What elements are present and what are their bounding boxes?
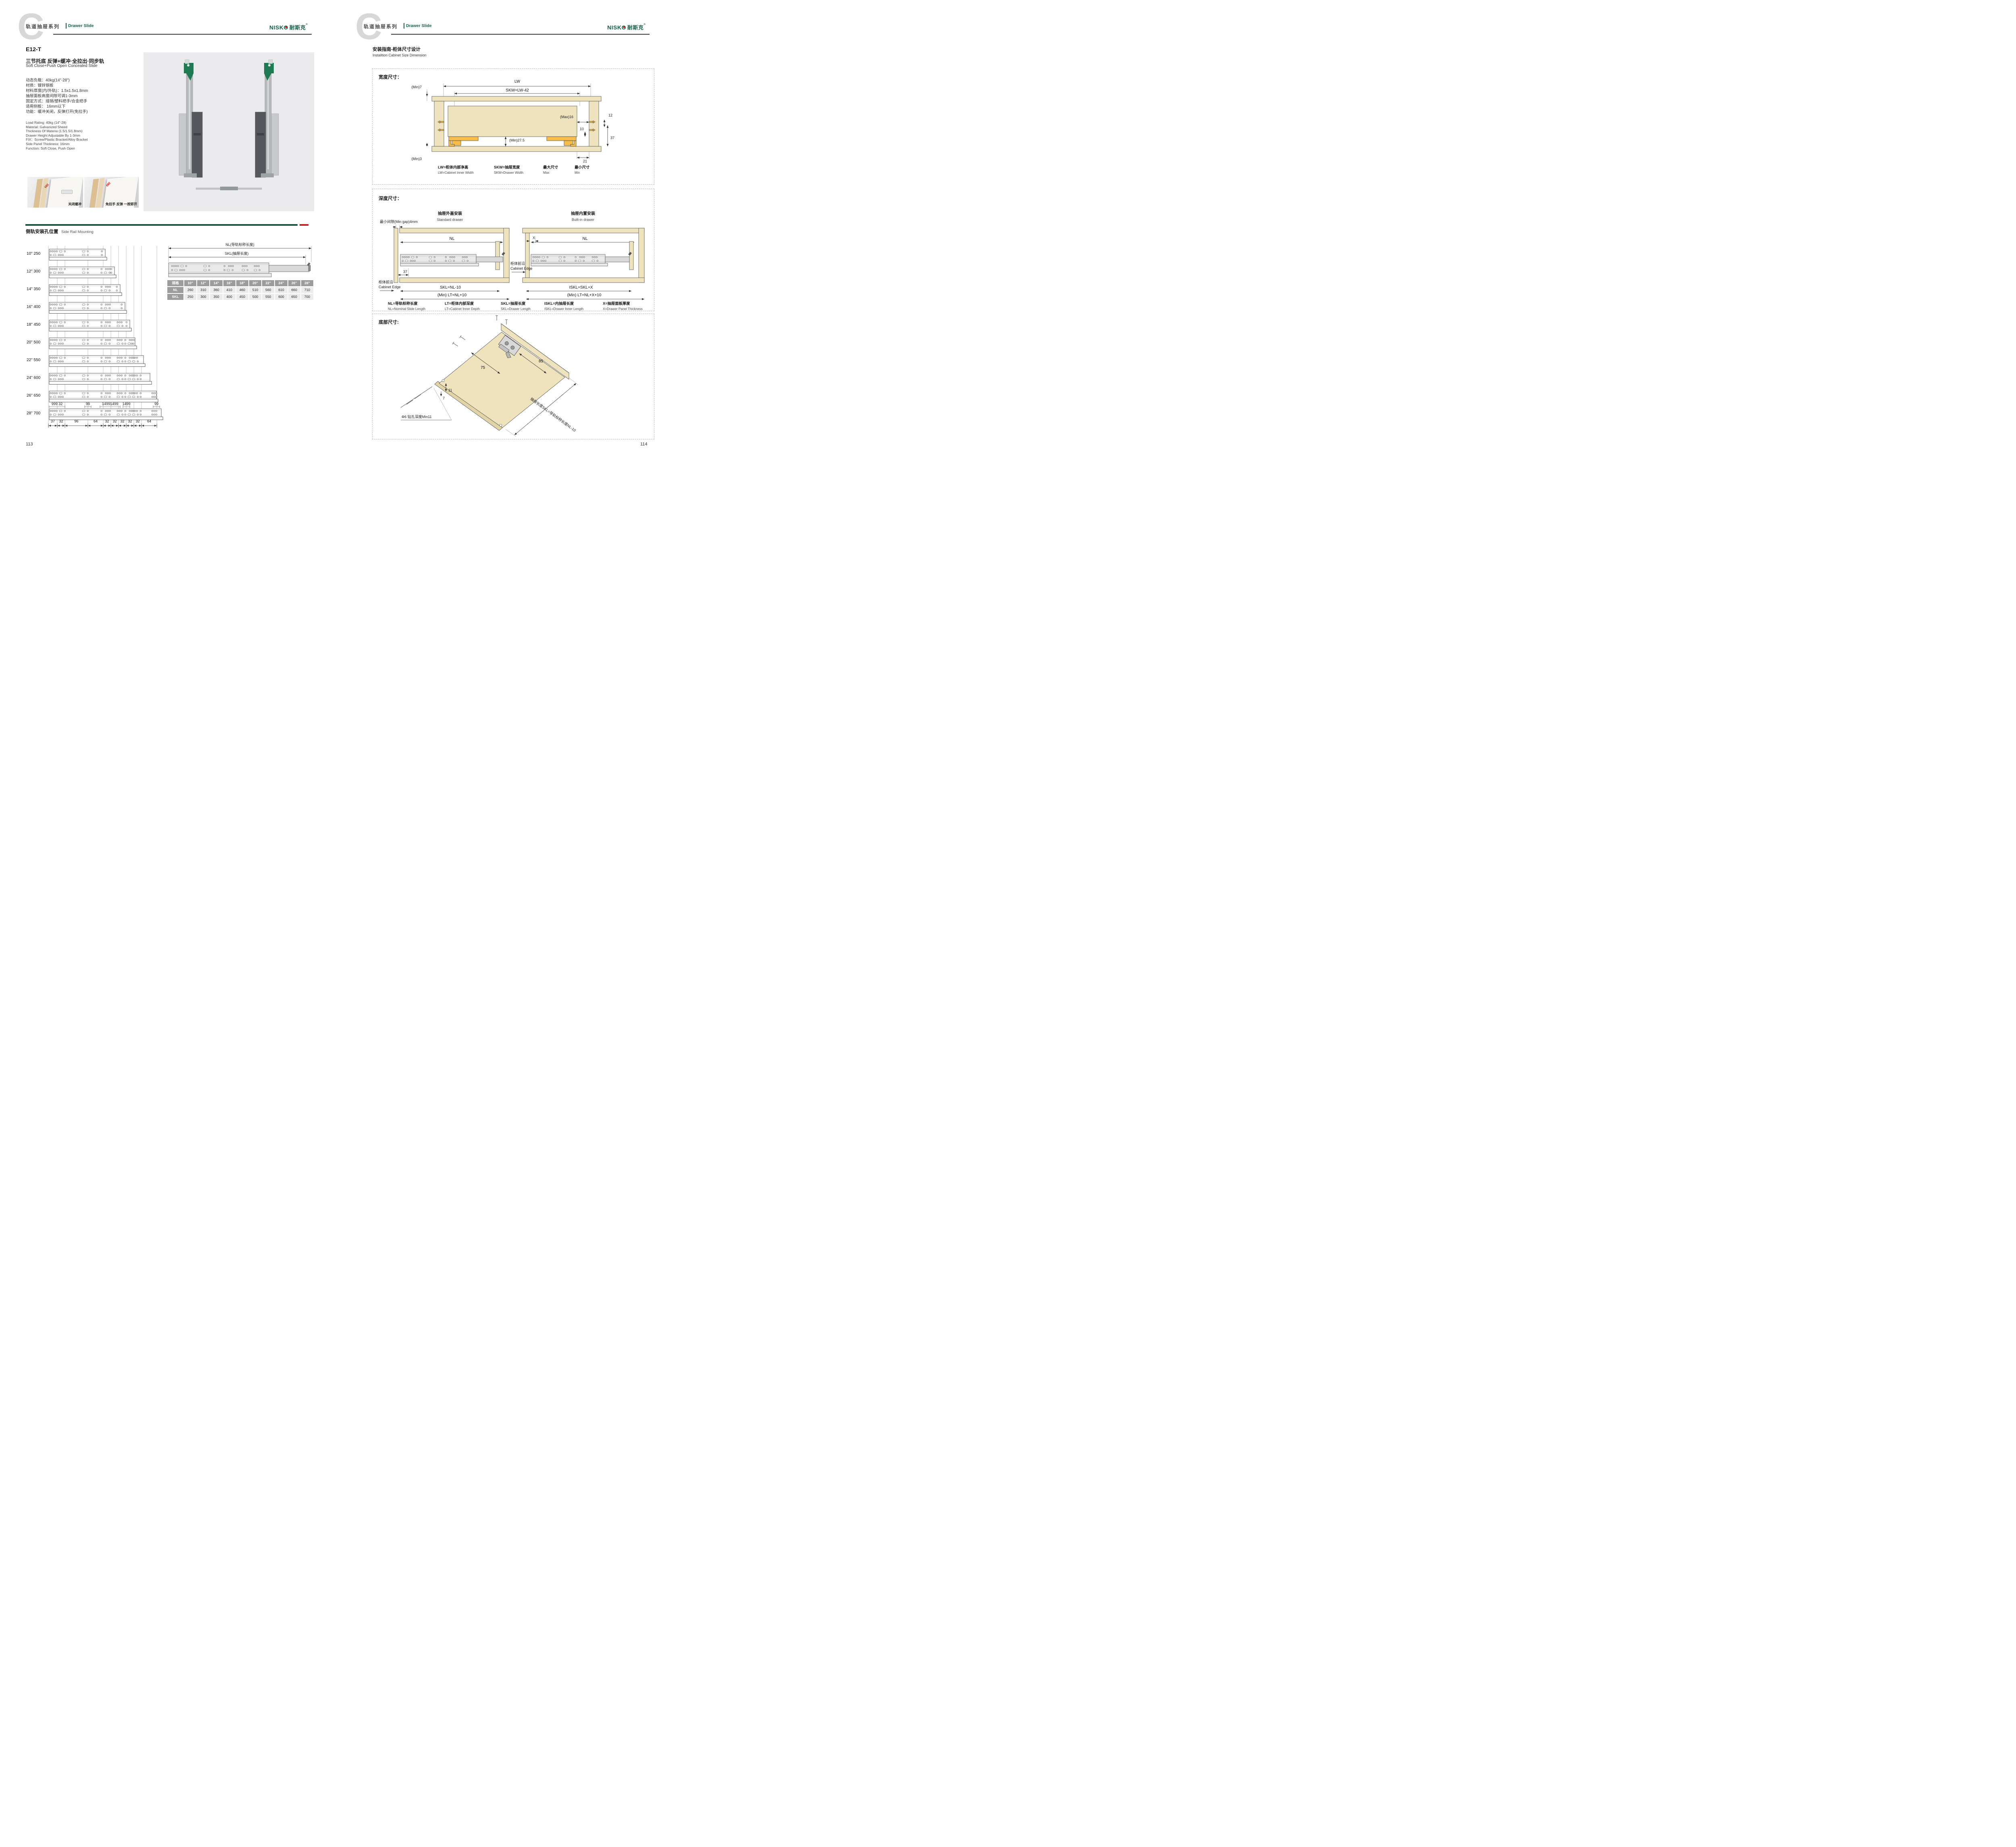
- std-edge-en: Cabinet Edge: [379, 285, 401, 289]
- table-cell: 300: [197, 294, 209, 300]
- nisko-logo: NISKO耐斯克®: [269, 23, 308, 31]
- legend-en: Min: [575, 171, 589, 175]
- table-header-size: 10": [184, 280, 196, 286]
- table-cell: 710: [301, 287, 313, 293]
- d7-label: 7: [443, 396, 445, 400]
- table-cell: 660: [288, 287, 300, 293]
- table-header-size: 12": [197, 280, 209, 286]
- rail-bottom-dim: 32: [128, 419, 132, 423]
- bi-edge-en: Cabinet Edge: [510, 266, 533, 270]
- rail-row-label: 22" 550: [27, 358, 41, 362]
- d85-label: 85: [539, 359, 544, 364]
- catalog-spread: C 轨道抽屉系列 Drawer Slide NISKO耐斯克® E12-T 三节…: [0, 0, 676, 462]
- series-title-cn: 轨道抽屉系列: [364, 23, 398, 30]
- legend-en: NL=Nominal Slide Length: [388, 307, 425, 311]
- legend-cn: SKW=抽屉宽度: [494, 164, 523, 170]
- d11-label: 11: [448, 388, 452, 392]
- nl-skl-diagram: NL(导轨标称长度) SKL(抽屉长度): [167, 242, 313, 279]
- table-cell: 510: [249, 287, 261, 293]
- max16-label: (Max)16: [560, 115, 573, 119]
- page-number-114: 114: [640, 442, 648, 447]
- min3-label: (Min)3: [411, 157, 422, 161]
- photo-caption: 关闭缓冲: [68, 202, 81, 206]
- rail-bottom-dim: 96: [74, 419, 78, 423]
- legend-item: ISKL=内抽屉长度ISKL=Drawer Inner Length: [544, 300, 583, 311]
- specs-en: Load Rating: 40kg (14"-28) Material: Gal…: [26, 121, 88, 150]
- legend-cn: ISKL=内抽屉长度: [544, 300, 583, 306]
- legend-item: 最大尺寸Max: [543, 164, 558, 175]
- legend-item: 最小尺寸Min: [575, 164, 589, 175]
- depth-dimension-diagram: 深度尺寸： 抽屉外盖安装 Standard drawer 最小间隙(Min ga…: [373, 189, 654, 311]
- rail-row-label: 10" 250: [27, 252, 41, 256]
- logo-o-icon: O: [621, 24, 626, 31]
- rail-bottom-dim: 32: [120, 419, 124, 423]
- table-header-size: 14": [210, 280, 222, 286]
- size-table: 规格10"12"14"16"18"20"22"24"26"28"NL260310…: [167, 280, 313, 300]
- d21-label: 21: [583, 159, 587, 163]
- spec-line: 材质：镀锌钢板: [26, 83, 88, 88]
- min7-label: (Min)7: [411, 85, 422, 89]
- x-label: X: [533, 236, 535, 240]
- legend-cn: LW=柜体内部净高: [438, 164, 474, 170]
- bottom-dimension-diagram: 底部尺寸:: [373, 314, 654, 439]
- table-row-label: SKL: [167, 294, 183, 300]
- diag-skl-label: 抽屉长度SKL=导轨标称长度NL-10: [529, 397, 577, 433]
- section-divider-accent: [300, 224, 308, 226]
- rail-row-label: 18" 450: [27, 322, 41, 327]
- legend-cn: SKL=抽屉长度: [501, 300, 531, 306]
- d75-label: 75: [481, 366, 485, 370]
- bottom-box-label: 底部尺寸:: [379, 319, 399, 325]
- rail-top-dim: 999 32: [52, 402, 63, 406]
- rail-top-dim: 99: [154, 402, 158, 406]
- table-cell: 450: [236, 294, 248, 300]
- bi-title-cn: 抽屉内置安装: [571, 211, 595, 216]
- table-header-size: 20": [249, 280, 261, 286]
- table-cell: 310: [197, 287, 209, 293]
- legend-item: NL=导轨标称长度NL=Nominal Slide Length: [388, 300, 425, 311]
- legend-item: X=抽屉面板厚度X=Drawer Panel Thickness: [603, 300, 643, 311]
- legend-en: ISKL=Drawer Inner Length: [544, 307, 583, 311]
- table-cell: 650: [288, 294, 300, 300]
- legend-cn: 最大尺寸: [543, 164, 558, 170]
- spec-line: Function: Soft Close, Push Open: [26, 146, 88, 151]
- rail-bottom-dim: 64: [94, 419, 98, 423]
- rail-row-label: 14" 350: [27, 287, 41, 291]
- slide-pair-illustration: [144, 52, 314, 211]
- product-title-en: Soft Close+Push Open Concealed Slide: [26, 64, 98, 68]
- bi-edge-cn: 柜体前沿: [510, 261, 525, 266]
- logo-cn: 耐斯克: [289, 25, 306, 31]
- spec-line: Side Panel Thickness: 16mm: [26, 142, 88, 146]
- spec-line: Thickness Of Materia (1.5/1.5/1.8mm): [26, 129, 88, 133]
- min-gap-label: 最小间隙(Min gap)4mm: [380, 219, 418, 224]
- std-title-cn: 抽屉外盖安装: [438, 211, 462, 216]
- rail-row-label: 26" 650: [27, 393, 41, 398]
- legend-en: LT=Cabinet Inner Depth: [445, 307, 480, 311]
- table-header-size: 26": [288, 280, 300, 286]
- table-header-size: 18": [236, 280, 248, 286]
- drawer-handle: [61, 190, 73, 194]
- lt-std-label: (Min) LT=NL+10: [437, 293, 467, 297]
- table-row-label: NL: [167, 287, 183, 293]
- table-cell: 350: [210, 294, 222, 300]
- series-separator: [66, 23, 67, 29]
- legend-item: SKL=抽屉长度SKL=Drawer Length: [501, 300, 531, 311]
- legend-cn: X=抽屉面板厚度: [603, 300, 643, 306]
- spec-line: 动态负载：40kg(14"-28"): [26, 78, 88, 83]
- table-cell: 410: [223, 287, 235, 293]
- std-title-en: Standard drawer: [437, 218, 463, 222]
- hole-depth-label: Φ6 钻孔深度Min11: [402, 414, 432, 419]
- legend-cn: NL=导轨标称长度: [388, 300, 425, 306]
- table-cell: 610: [275, 287, 287, 293]
- depth-dimension-box: 深度尺寸： 抽屉外盖安装 Standard drawer 最小间隙(Min ga…: [372, 189, 654, 311]
- bi-title-en: Built-in drawer: [572, 218, 594, 222]
- side-rail-mounting-diagram: 10" 25012" 30014" 35016" 40018" 45020" 5…: [23, 242, 165, 431]
- rail-bottom-dim: 32: [59, 419, 63, 423]
- legend-en: SKW=Drawer Width: [494, 171, 523, 175]
- legend-en: Max: [543, 171, 558, 175]
- spec-line: 适用侧板： 16mm以下: [26, 104, 88, 109]
- table-cell: 460: [236, 287, 248, 293]
- std-37-label: 37: [403, 270, 407, 274]
- bottom-dimension-box: 底部尺寸:: [372, 314, 654, 439]
- table-cell: 360: [210, 287, 222, 293]
- photo-caption: 免拉手 反弹 一按即开: [106, 202, 137, 206]
- min275-label: (Min)27.5: [509, 138, 525, 142]
- legend-item: LT=柜体内部深度LT=Cabinet Inner Depth: [445, 300, 480, 311]
- rail-bottom-dim: 32: [105, 419, 109, 423]
- table-cell: 500: [249, 294, 261, 300]
- table-header-spec: 规格: [167, 280, 183, 286]
- rail-bottom-dim: 32: [135, 419, 140, 423]
- photo-soft-close: «« 关闭缓冲: [27, 177, 83, 208]
- table-cell: 260: [184, 287, 196, 293]
- model-code: E12-T: [26, 46, 41, 52]
- product-photo: [144, 52, 314, 211]
- legend-en: SKL=Drawer Length: [501, 307, 531, 311]
- header-rule: [53, 34, 312, 35]
- spec-line: Load Rating: 40kg (14"-28): [26, 121, 88, 125]
- logo-o-icon: O: [283, 24, 288, 31]
- rail-top-dim: 99: [86, 402, 90, 406]
- table-cell: 600: [275, 294, 287, 300]
- table-cell: 400: [223, 294, 235, 300]
- table-header-size: 24": [275, 280, 287, 286]
- spec-line: FIX：Screw/Plastic Bracket/Alloy Bracket: [26, 137, 88, 142]
- logo-registered-icon: ®: [644, 23, 646, 26]
- header-rule: [391, 34, 650, 35]
- series-title-en: Drawer Slide: [68, 23, 94, 28]
- rail-top-dim: 14991499: [102, 402, 118, 406]
- table-cell: 550: [262, 294, 274, 300]
- legend-en: LW=Cabinet Inner Width: [438, 171, 474, 175]
- table-cell: 560: [262, 287, 274, 293]
- d10-label: 10: [580, 127, 584, 131]
- section-divider: [25, 224, 298, 226]
- photo-push-open: «« 免拉手 反弹 一按即开: [84, 177, 139, 208]
- bi-nl-label: NL: [583, 237, 588, 241]
- table-header-size: 16": [223, 280, 235, 286]
- rail-bottom-dim: 64: [147, 419, 151, 423]
- table-header-size: 22": [262, 280, 274, 286]
- install-guide-title-cn: 安装指南-柜体尺寸设计: [373, 46, 421, 52]
- table-header-size: 28": [301, 280, 313, 286]
- lt-bi-label: (Min) LT=NL+X+10: [567, 293, 602, 297]
- rail-row-label: 12" 300: [27, 269, 41, 274]
- spec-line: Drawer Height Adjustable By 1-3mm: [26, 133, 88, 138]
- spec-line: Material: Galvanized Sheed: [26, 125, 88, 129]
- logo-cn: 耐斯克: [627, 25, 644, 31]
- iskl-label: ISKL=SKL+X: [569, 285, 593, 290]
- rail-row-label: 24" 600: [27, 376, 41, 380]
- series-title-cn: 轨道抽屉系列: [26, 23, 60, 30]
- legend-en: X=Drawer Panel Thickness: [603, 307, 643, 311]
- logo-latin: NISK: [607, 24, 621, 31]
- spec-line: 固定方式：插销/塑料把手/合金把手: [26, 99, 88, 104]
- rail-top-dim: 1499: [122, 402, 130, 406]
- spec-line: 抽屉面板高度间隙可调1-3mm: [26, 94, 88, 99]
- table-cell: 250: [184, 294, 196, 300]
- section-title-cn: 侧轨安装孔位置: [26, 228, 58, 235]
- std-edge-cn: 柜体前沿: [379, 280, 393, 284]
- table-cell: 700: [301, 294, 313, 300]
- install-guide-title-en: Installtion Cabinet Size Dimension: [373, 53, 427, 57]
- depth-box-label: 深度尺寸：: [379, 196, 402, 201]
- skw-label: SKW=LW-42: [506, 88, 529, 93]
- legend-item: SKW=抽屉宽度SKW=Drawer Width: [494, 164, 523, 175]
- rail-row-label: 20" 500: [27, 340, 41, 345]
- legend-cn: LT=柜体内部深度: [445, 300, 480, 306]
- lw-label: LW: [514, 79, 521, 84]
- rail-bottom-dim: 32: [112, 419, 117, 423]
- rail-row-label: 28" 700: [27, 411, 41, 416]
- specs-cn: 动态负载：40kg(14"-28") 材质：镀锌钢板 材料厚度(内/外轨)：1.…: [26, 78, 88, 114]
- series-separator: [404, 23, 404, 29]
- legend-item: LW=柜体内部净高LW=Cabinet Inner Width: [438, 164, 474, 175]
- logo-latin: NISK: [269, 24, 283, 31]
- rail-bottom-dim: 37: [51, 419, 55, 423]
- rail-row-label: 16" 400: [27, 305, 41, 309]
- skl-dim-label: SKL(抽屉长度): [225, 251, 248, 256]
- std-nl-label: NL: [450, 237, 455, 241]
- spec-line: 功能：缓冲关闭，反弹打开(免拉手): [26, 109, 88, 114]
- nl-dim-label: NL(导轨标称长度): [225, 242, 254, 247]
- d12-label: 12: [608, 113, 612, 117]
- spec-line: 材料厚度(内/外轨)：1.5x1.5x1.8mm: [26, 88, 88, 94]
- legend-cn: 最小尺寸: [575, 164, 589, 170]
- series-title-en: Drawer Slide: [406, 23, 432, 28]
- d37-label: 37: [610, 136, 614, 140]
- skl-eq-label: SKL=NL-10: [440, 285, 461, 290]
- page-number-113: 113: [26, 442, 33, 447]
- nisko-logo: NISKO耐斯克®: [607, 23, 646, 31]
- section-title-en: Side Rail Mounting: [61, 230, 94, 234]
- logo-registered-icon: ®: [306, 23, 308, 26]
- width-dimension-box: 宽度尺寸： LW SKW=LW-42 (Min)7: [372, 69, 654, 185]
- width-box-label: 宽度尺寸：: [378, 74, 402, 80]
